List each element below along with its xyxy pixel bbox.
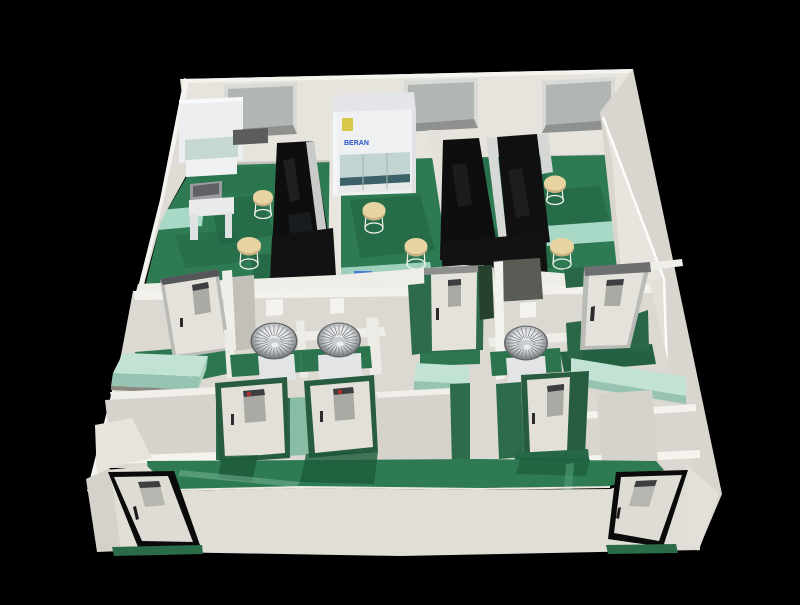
svg-text:BERAN: BERAN xyxy=(344,140,369,147)
